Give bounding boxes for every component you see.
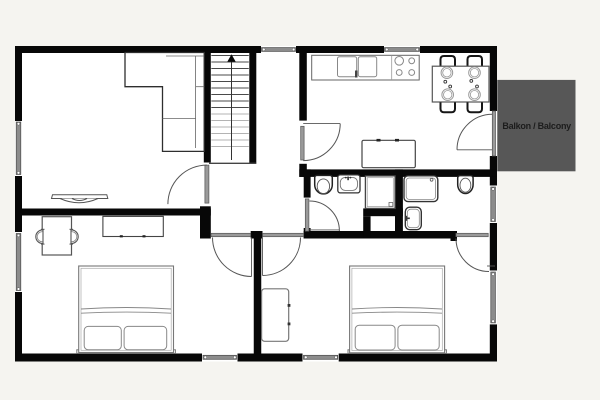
svg-text:Balkon / Balcony: Balkon / Balcony <box>502 121 571 131</box>
